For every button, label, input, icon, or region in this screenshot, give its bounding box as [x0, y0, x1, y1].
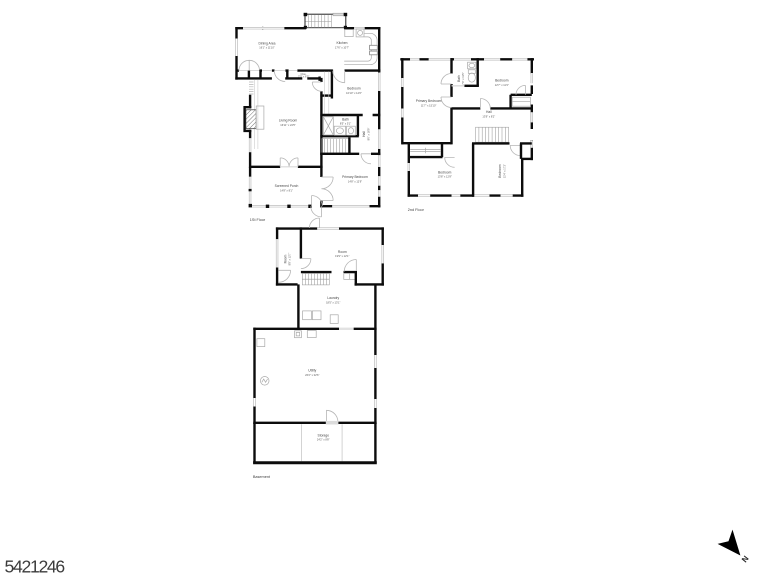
svg-text:17'6" x 10'7": 17'6" x 10'7" — [335, 45, 349, 49]
svg-text:Bedroom: Bedroom — [438, 170, 452, 174]
svg-text:11'7" x 15'10": 11'7" x 15'10" — [421, 103, 437, 107]
svg-text:Utility: Utility — [308, 369, 316, 373]
svg-text:Basement: Basement — [253, 475, 271, 479]
svg-text:Bath: Bath — [342, 117, 349, 121]
svg-text:19'9" x 12'1": 19'9" x 12'1" — [335, 254, 349, 258]
svg-text:Bedroom: Bedroom — [498, 164, 502, 178]
svg-text:Dining Area: Dining Area — [258, 41, 275, 45]
svg-text:Hall: Hall — [486, 110, 492, 114]
svg-text:13'9" x 8'2": 13'9" x 8'2" — [482, 114, 495, 118]
svg-text:8'8" x 12'7": 8'8" x 12'7" — [288, 253, 292, 266]
svg-text:Bedroom: Bedroom — [347, 87, 361, 91]
svg-text:Storage: Storage — [318, 433, 330, 437]
svg-text:2nd Floor: 2nd Floor — [408, 208, 425, 212]
svg-text:24'2" x 8'8": 24'2" x 8'8" — [317, 438, 330, 442]
svg-text:5421246: 5421246 — [5, 557, 66, 576]
svg-text:18'5" x 13'1": 18'5" x 13'1" — [326, 300, 340, 304]
svg-text:10'10" x 14'6": 10'10" x 14'6" — [346, 91, 362, 95]
svg-text:13'8" x 12'8": 13'8" x 12'8" — [438, 175, 452, 179]
svg-text:Bath: Bath — [457, 75, 461, 82]
svg-text:2'0" x 6'5": 2'0" x 6'5" — [298, 74, 309, 78]
svg-text:Screened Porch: Screened Porch — [275, 184, 299, 188]
svg-text:Primary Bedroom: Primary Bedroom — [416, 99, 442, 103]
svg-text:14'8" x 12'9": 14'8" x 12'9" — [348, 179, 362, 183]
svg-text:Bedroom: Bedroom — [495, 79, 509, 83]
svg-text:1St Floor: 1St Floor — [250, 218, 266, 222]
svg-text:Kitchen: Kitchen — [337, 41, 348, 45]
svg-text:14'8" x 8'1": 14'8" x 8'1" — [280, 188, 293, 192]
svg-text:Living Room: Living Room — [279, 119, 298, 123]
svg-text:Laundry: Laundry — [327, 296, 339, 300]
svg-text:8'5" x 5'1": 8'5" x 5'1" — [340, 121, 351, 125]
svg-text:16'11" x 24'5": 16'11" x 24'5" — [280, 123, 296, 127]
svg-text:7'9" x 11'5": 7'9" x 11'5" — [461, 72, 465, 85]
svg-text:12'7" x 11'3": 12'7" x 11'3" — [495, 83, 509, 87]
svg-text:16'1" x 11'10": 16'1" x 11'10" — [259, 46, 275, 50]
svg-text:26'2" x 32'6": 26'2" x 32'6" — [305, 373, 319, 377]
svg-text:8'0" x 16'9": 8'0" x 16'9" — [366, 128, 370, 141]
svg-text:Primary Bedroom: Primary Bedroom — [342, 175, 368, 179]
svg-text:Room: Room — [283, 254, 287, 263]
svg-text:Hall: Hall — [362, 131, 366, 137]
svg-text:11'4" x 17'2": 11'4" x 17'2" — [502, 164, 506, 178]
svg-text:Room: Room — [338, 250, 347, 254]
